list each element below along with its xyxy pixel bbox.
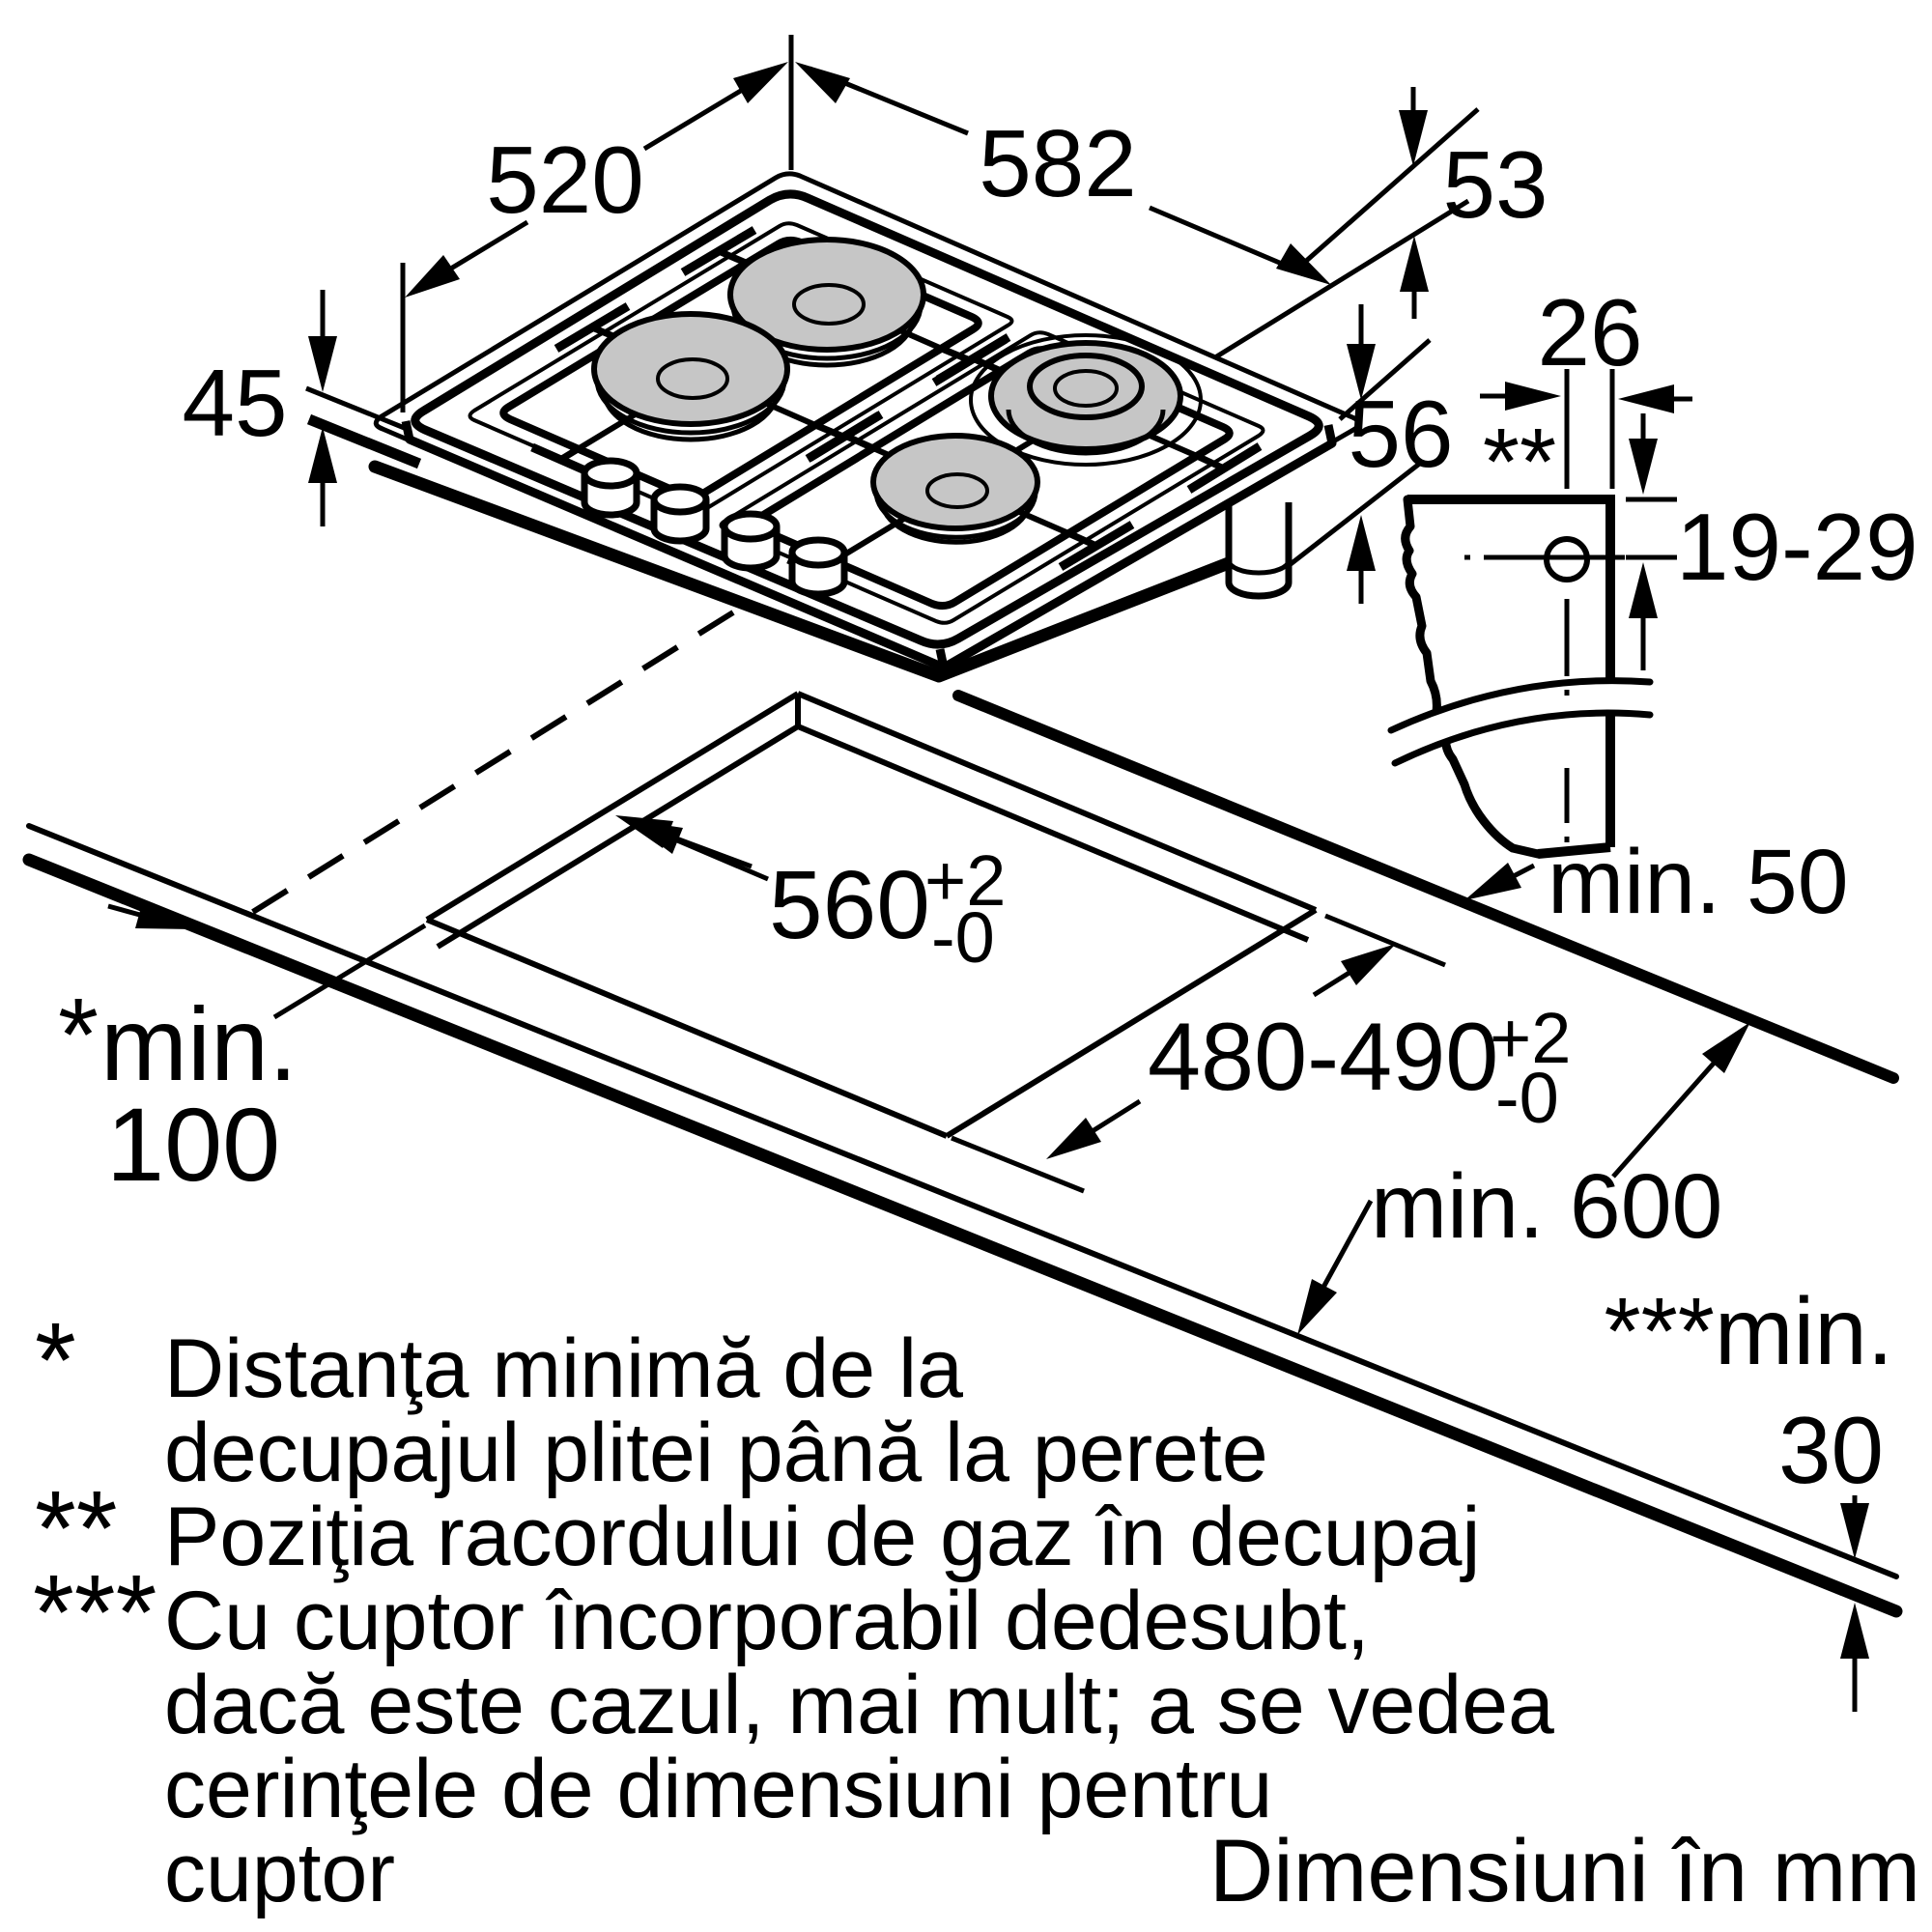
svg-text:Cu cuptor încorporabil dedesub: Cu cuptor încorporabil dedesubt,: [164, 1575, 1370, 1667]
svg-text:Distanţa minimă de la: Distanţa minimă de la: [164, 1322, 963, 1415]
svg-text:53: 53: [1442, 131, 1548, 238]
svg-text:cuptor: cuptor: [164, 1827, 395, 1919]
svg-text:min. 600: min. 600: [1371, 1155, 1722, 1258]
svg-text:30: 30: [1778, 1397, 1884, 1503]
svg-text:19-29: 19-29: [1676, 494, 1918, 600]
svg-text:cerinţele de dimensiuni pentru: cerinţele de dimensiuni pentru: [164, 1743, 1272, 1835]
svg-text:min.: min.: [100, 985, 298, 1102]
svg-text:***: ***: [33, 1553, 156, 1672]
svg-text:26: 26: [1537, 279, 1642, 385]
svg-text:min. 50: min. 50: [1548, 831, 1849, 933]
svg-text:**: **: [1483, 409, 1556, 515]
svg-text:582: 582: [979, 110, 1137, 216]
svg-text:Dimensiuni în mm: Dimensiuni în mm: [1209, 1822, 1920, 1920]
svg-text:***min.: ***min.: [1604, 1278, 1893, 1384]
svg-text:decupajul plitei până la peret: decupajul plitei până la perete: [164, 1406, 1268, 1499]
svg-text:-0: -0: [931, 897, 995, 978]
svg-text:-0: -0: [1495, 1058, 1559, 1138]
svg-text:560: 560: [769, 851, 930, 959]
svg-text:56: 56: [1348, 381, 1453, 487]
svg-text:480-490: 480-490: [1148, 1003, 1498, 1110]
svg-text:*: *: [58, 976, 99, 1093]
svg-text:520: 520: [486, 127, 644, 233]
svg-text:100: 100: [106, 1086, 280, 1203]
svg-text:dacă este cazul, mai mult; a s: dacă este cazul, mai mult; a se vedea: [164, 1659, 1554, 1751]
svg-text:*: *: [35, 1301, 76, 1420]
svg-text:45: 45: [182, 350, 287, 456]
svg-text:Poziţia racordului de gaz în d: Poziţia racordului de gaz în decupaj: [164, 1491, 1481, 1583]
